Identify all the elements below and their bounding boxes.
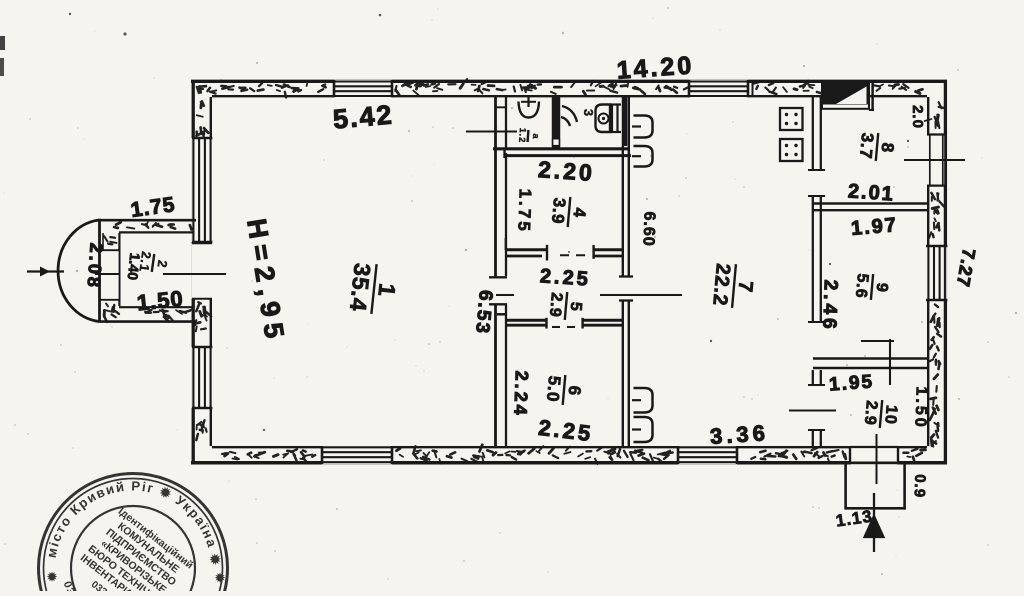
svg-text:5.42: 5.42 — [332, 99, 395, 134]
svg-text:3.7: 3.7 — [856, 132, 877, 160]
svg-text:3: 3 — [581, 109, 596, 117]
svg-text:8: 8 — [878, 142, 898, 154]
svg-text:2.25: 2.25 — [539, 265, 591, 290]
svg-text:2.0: 2.0 — [909, 105, 926, 129]
svg-text:35.4: 35.4 — [345, 262, 376, 313]
svg-text:1.97: 1.97 — [850, 214, 899, 240]
svg-text:1.50: 1.50 — [911, 386, 929, 430]
svg-text:3.9: 3.9 — [548, 197, 569, 225]
svg-text:2.9: 2.9 — [861, 400, 880, 427]
svg-text:0.9: 0.9 — [911, 474, 929, 498]
svg-text:2.1: 2.1 — [136, 250, 154, 273]
svg-text:6.53: 6.53 — [471, 289, 496, 336]
svg-text:3.36: 3.36 — [709, 420, 769, 449]
svg-text:2.9: 2.9 — [546, 292, 565, 319]
svg-text:а: а — [531, 133, 541, 140]
svg-text:2.24: 2.24 — [510, 370, 532, 418]
svg-text:2.01: 2.01 — [847, 180, 895, 205]
svg-text:5: 5 — [567, 301, 585, 312]
svg-text:10: 10 — [881, 404, 900, 425]
svg-text:6.60: 6.60 — [639, 211, 657, 247]
svg-text:1: 1 — [373, 282, 400, 298]
svg-text:2.20: 2.20 — [537, 156, 595, 186]
svg-text:4: 4 — [570, 207, 590, 219]
svg-text:1.50: 1.50 — [136, 286, 185, 316]
svg-text:6: 6 — [565, 385, 585, 397]
svg-text:1.75: 1.75 — [514, 188, 535, 234]
svg-text:✹: ✹ — [214, 571, 226, 585]
svg-text:✹: ✹ — [46, 570, 58, 584]
svg-text:1.95: 1.95 — [828, 371, 874, 395]
svg-text:22.2: 22.2 — [708, 263, 734, 308]
svg-text:1.2: 1.2 — [517, 128, 528, 144]
svg-text:2.46: 2.46 — [818, 279, 841, 333]
svg-text:9: 9 — [873, 282, 891, 293]
svg-text:5.0: 5.0 — [543, 375, 564, 403]
svg-text:5.6: 5.6 — [852, 273, 871, 300]
svg-text:7: 7 — [733, 280, 756, 294]
svg-text:2.08: 2.08 — [83, 242, 106, 290]
svg-text:14.20: 14.20 — [616, 51, 695, 84]
